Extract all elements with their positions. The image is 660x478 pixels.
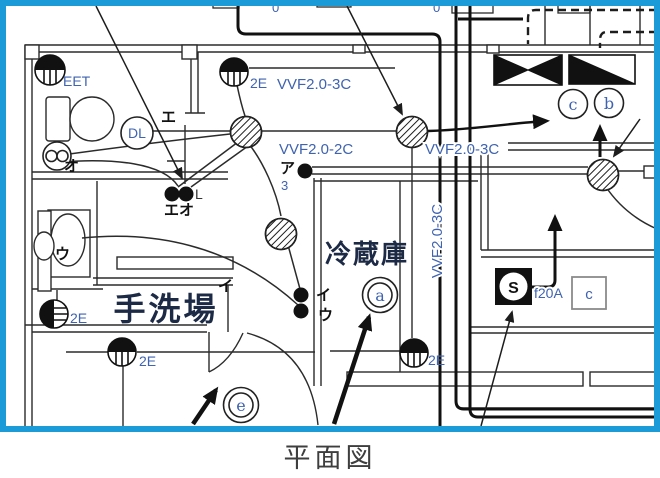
toilet-bowl: [70, 97, 114, 141]
kana-o-label: オ: [64, 158, 79, 175]
room-label-fridge: 冷蔵庫: [325, 239, 409, 269]
cable-label-top: VVF2.0-3C: [277, 76, 351, 93]
mark-c-label: c: [569, 95, 578, 114]
outlet-2e-top-icon: [220, 58, 248, 86]
outlet-2e-right-label: 2E: [428, 352, 445, 368]
mark-a-label: a: [375, 286, 385, 305]
junction-box-icon: [231, 117, 262, 148]
kana-e-label: エ: [161, 109, 176, 126]
kana-i-label: イ: [316, 287, 331, 304]
outlet-2e-bottom-label: 2E: [139, 353, 156, 369]
floorplan-svg: EET 2E 2E 2E 2E VVF2.0-3C VVF2.0-2C VVF2…: [0, 0, 660, 432]
kana-i-counter-label: イ: [218, 278, 233, 295]
kana-l-label: L: [195, 186, 203, 202]
cable-label-right: VVF2.0-3C: [425, 141, 499, 158]
screenshot: EET 2E 2E 2E 2E VVF2.0-3C VVF2.0-2C VVF2…: [0, 0, 660, 478]
switch-dot: [298, 164, 313, 179]
junction-box-icon: [266, 219, 297, 250]
switch-dot: [165, 187, 180, 202]
cable-label-left: VVF2.0-2C: [279, 141, 353, 158]
cable-label-vertical: VVF2.0-3C: [429, 204, 446, 278]
counter-short: [590, 372, 657, 386]
room-label-washstand: 手洗場: [113, 291, 218, 327]
switch-dot: [294, 304, 309, 319]
outlet-2e-left-icon: [40, 300, 68, 328]
downlight-label: DL: [128, 125, 146, 141]
fan-box-diagonal-icon: [569, 55, 635, 84]
mark-e-label: e: [236, 396, 245, 415]
kana-u-label: ウ: [318, 307, 333, 324]
outlet-2e-bottom-icon: [108, 338, 136, 366]
urinal-side: [34, 232, 54, 260]
outlet-2e-top-label: 2E: [250, 75, 267, 91]
junction-box-icon: [397, 117, 428, 148]
washbasin-counter: [117, 257, 233, 269]
floorplan-caption: 平面図: [0, 432, 660, 478]
label-three: 3: [281, 178, 288, 193]
mark-b-label: b: [604, 94, 614, 113]
fuse-rating-label: f20A: [534, 285, 563, 301]
kana-eo-label: エオ: [164, 202, 194, 219]
counter-long: [347, 372, 583, 386]
switch-box-s-label: S: [508, 280, 519, 297]
outlet-2e-right-icon: [400, 339, 428, 367]
toilet-tank: [46, 97, 70, 141]
junction-box-icon: [588, 160, 619, 191]
switch-dot: [294, 288, 309, 303]
outlet-eet-icon: [35, 55, 65, 85]
outlet-eet-label: EET: [63, 73, 91, 89]
kana-a-label: ア: [280, 160, 295, 177]
kana-u-fan-label: ウ: [55, 246, 70, 263]
outlet-2e-left-label: 2E: [70, 310, 87, 326]
fan-box-crossed-icon: [494, 55, 562, 85]
mark-c-square-label: c: [585, 286, 593, 303]
switch-dot: [179, 187, 194, 202]
diagram-frame: EET 2E 2E 2E 2E VVF2.0-3C VVF2.0-2C VVF2…: [0, 0, 660, 432]
